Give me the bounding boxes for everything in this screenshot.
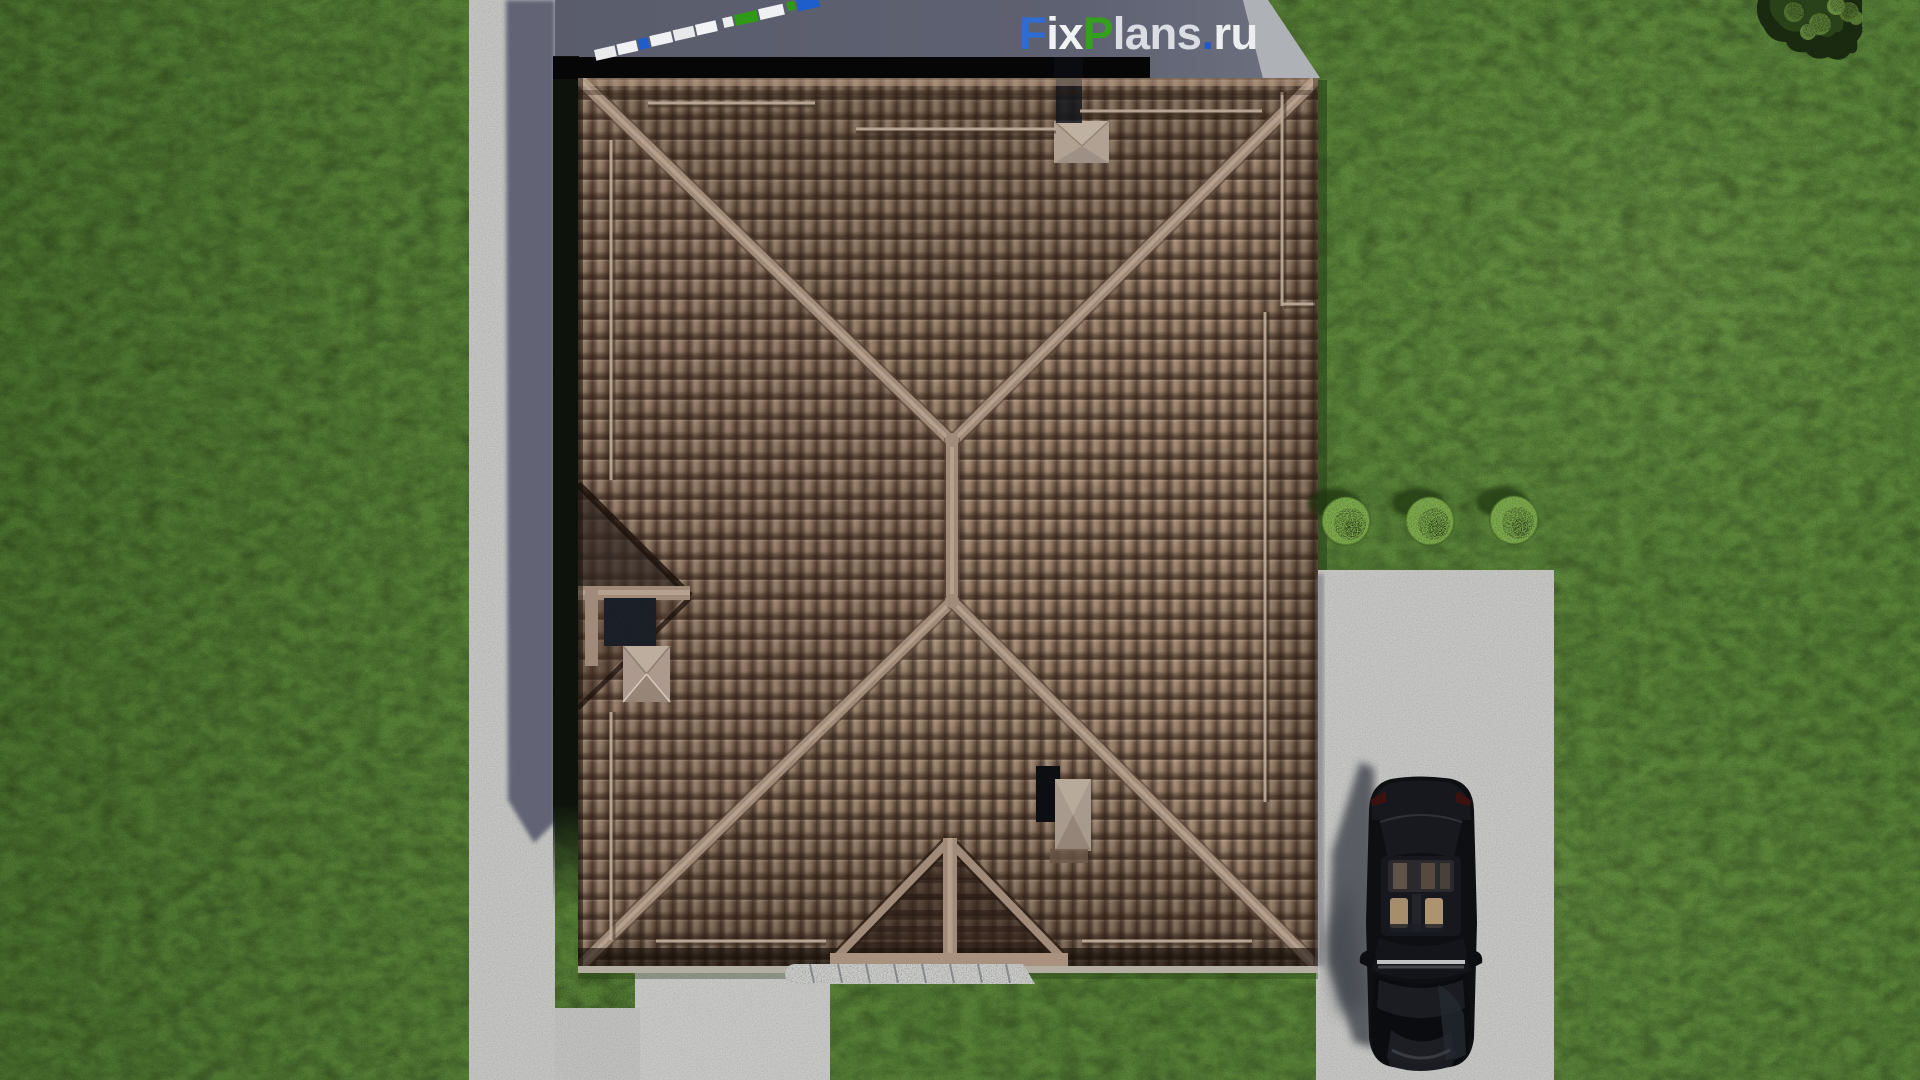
- svg-text:FixPlans.ru: FixPlans.ru: [1019, 8, 1258, 59]
